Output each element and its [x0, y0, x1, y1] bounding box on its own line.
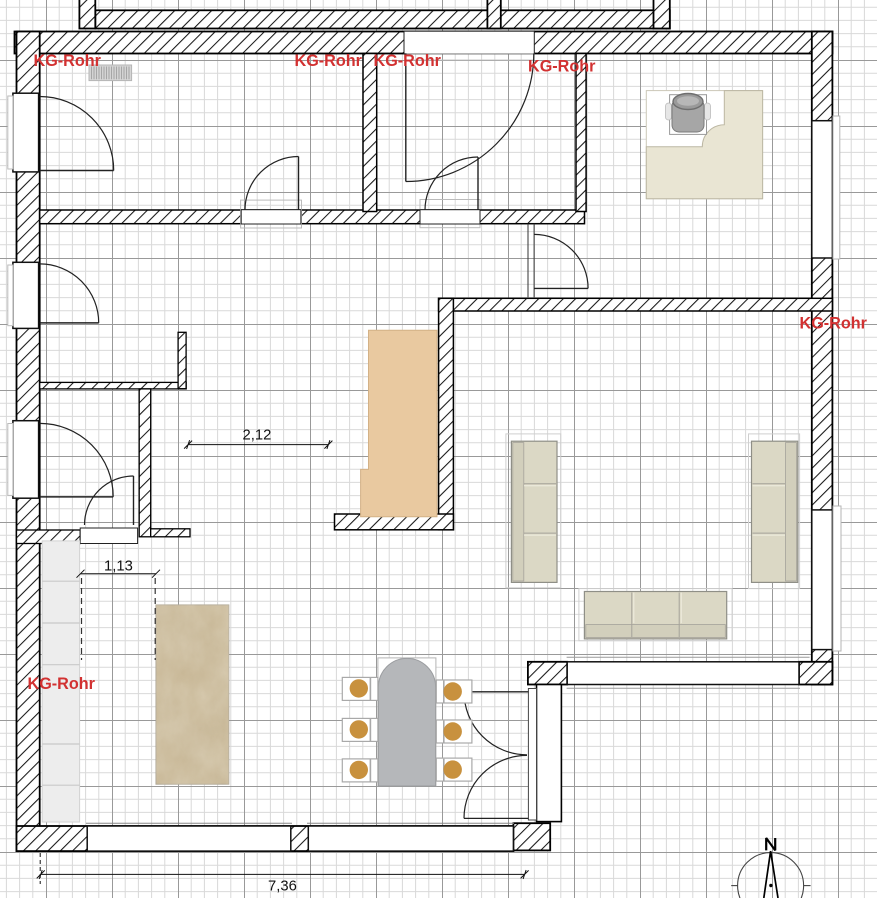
svg-text:KG-Rohr: KG-Rohr [34, 52, 102, 70]
svg-text:KG-Rohr: KG-Rohr [800, 315, 868, 333]
svg-text:1,13: 1,13 [104, 559, 133, 575]
svg-text:KG-Rohr: KG-Rohr [295, 52, 363, 70]
svg-text:KG-Rohr: KG-Rohr [528, 58, 596, 76]
svg-text:2,12: 2,12 [243, 428, 272, 444]
svg-text:KG-Rohr: KG-Rohr [28, 675, 96, 693]
svg-text:KG-Rohr: KG-Rohr [374, 52, 442, 70]
svg-text:7,36: 7,36 [268, 879, 297, 895]
